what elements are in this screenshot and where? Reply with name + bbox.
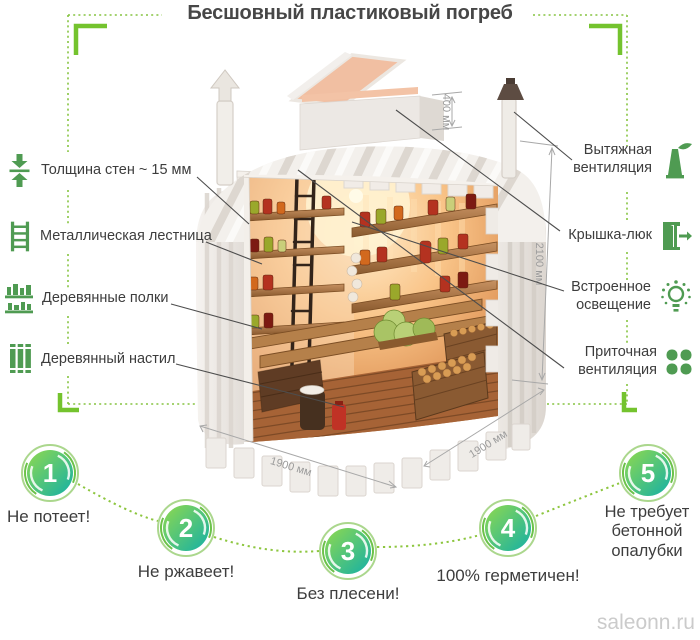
feature-label: Деревянный настил <box>41 351 176 369</box>
benefit-number: 2 <box>179 513 193 543</box>
feature-lighting: Встроенное освещение <box>552 279 692 315</box>
watermark: saleonn.ru <box>597 611 695 635</box>
hatch-neck-front <box>300 96 420 150</box>
benefit-label-5: Не требует бетонной опалубки <box>594 503 700 561</box>
feature-shelves: Деревянные полки <box>5 283 215 314</box>
benefit-label-1: Не потеет! <box>7 507 137 527</box>
benefit-circle-5: 5 <box>613 438 683 508</box>
light-bulb-icon <box>660 279 692 315</box>
benefit-number: 5 <box>641 458 655 488</box>
cellar-interior <box>238 153 510 449</box>
wall-thickness-icon <box>7 154 32 187</box>
feature-label: Приточная вентиляция <box>565 344 657 379</box>
feature-flooring: Деревянный настил <box>9 344 219 375</box>
feature-hatch-cover: Крышка-люк <box>552 221 692 251</box>
bracket-top-right <box>589 26 620 55</box>
red-jar <box>332 404 346 430</box>
hatch <box>287 52 444 150</box>
dim-total-height: 2100 мм <box>533 243 545 286</box>
feature-exhaust-vent: Вытяжная вентиляция <box>552 141 692 179</box>
benefit-number: 4 <box>501 513 516 543</box>
shelves-icon <box>5 283 33 314</box>
feature-label: Деревянные полки <box>42 290 168 308</box>
benefit-circle-4: 4 <box>473 493 543 563</box>
feature-label: Вытяжная вентиляция <box>560 142 652 177</box>
feature-ladder: Металлическая лестница <box>9 221 239 252</box>
feature-wall-thickness: Толщина стен ~ 15 мм <box>7 154 207 187</box>
page-title: Бесшовный пластиковый погреб <box>0 2 700 25</box>
benefit-number: 1 <box>43 458 57 488</box>
feature-label: Металлическая лестница <box>40 228 212 246</box>
dim-hatch-height: 400 мм <box>440 94 452 131</box>
feature-label: Крышка-люк <box>556 227 652 245</box>
bracket-bottom-left <box>60 393 79 410</box>
ladder-icon <box>9 221 31 252</box>
up-arrow-cap <box>211 70 239 101</box>
benefit-label-4: 100% герметичен! <box>418 566 598 586</box>
exhaust-cap <box>497 84 524 100</box>
supply-pipe <box>211 70 239 185</box>
exhaust-vent-icon <box>661 141 692 179</box>
feature-label: Встроенное освещение <box>559 279 651 314</box>
bracket-top-left <box>76 26 107 55</box>
infographic-plastic-cellar: 400 мм 2100 мм 1900 мм 1900 мм <box>0 0 700 640</box>
barrel <box>300 390 325 430</box>
benefit-circle-3: 3 <box>313 516 383 586</box>
benefit-number: 3 <box>341 536 355 566</box>
benefit-label-2: Не ржавеет! <box>116 562 256 582</box>
feature-supply-vent: Приточная вентиляция <box>552 344 692 379</box>
benefit-circle-2: 2 <box>151 493 221 563</box>
feature-label: Толщина стен ~ 15 мм <box>41 162 191 180</box>
supply-fan-icon <box>666 349 692 375</box>
bracket-bottom-right <box>624 392 637 410</box>
benefit-label-3: Без плесени! <box>278 584 418 604</box>
interior-lamp <box>349 189 363 203</box>
planks-icon <box>9 344 32 375</box>
hatch-door-icon <box>661 221 692 251</box>
benefit-circle-1: 1 <box>15 438 85 508</box>
